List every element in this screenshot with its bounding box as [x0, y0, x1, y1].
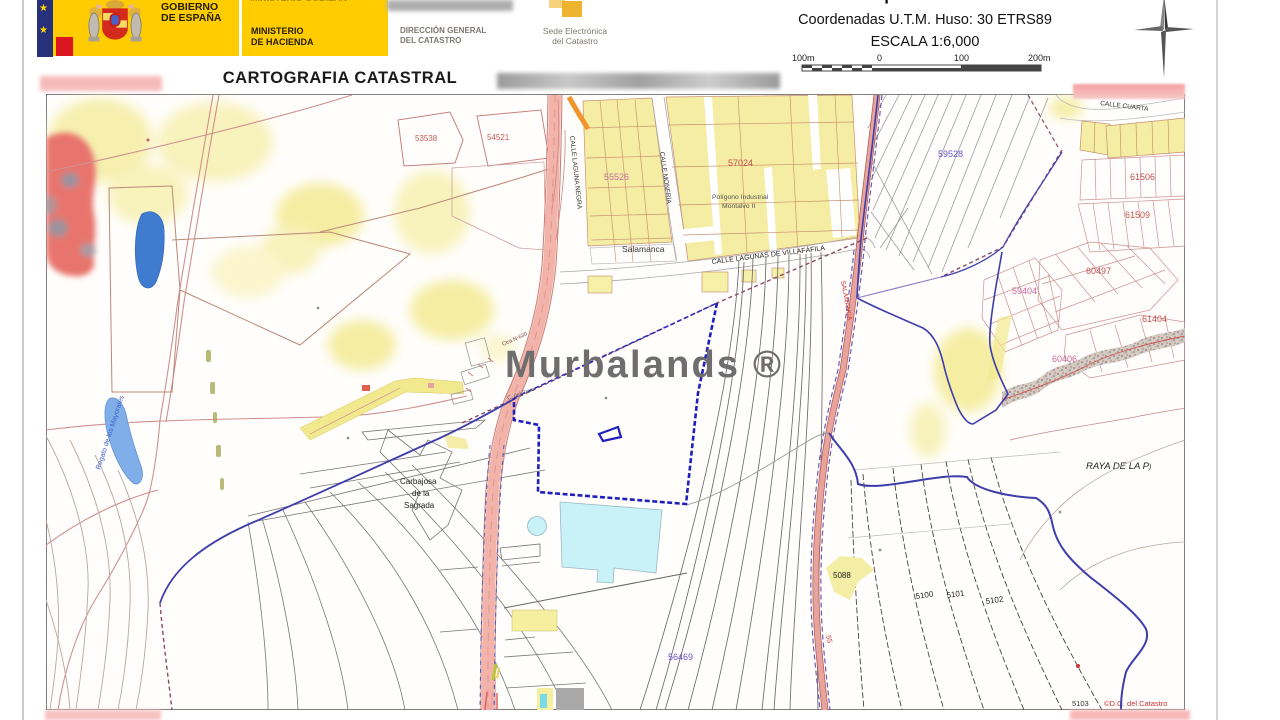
svg-text:57024: 57024	[728, 158, 753, 168]
svg-text:Salamanca: Salamanca	[622, 244, 665, 254]
svg-text:RAYA DE LA P): RAYA DE LA P)	[1086, 461, 1151, 472]
svg-text:100m: 100m	[792, 53, 815, 63]
svg-text:59528: 59528	[938, 149, 963, 159]
svg-text:100: 100	[954, 53, 969, 63]
svg-text:de la: de la	[412, 489, 430, 498]
svg-text:61506: 61506	[1130, 172, 1155, 182]
svg-text:56469: 56469	[668, 652, 693, 662]
svg-text:5103: 5103	[1072, 699, 1089, 708]
svg-text:54521: 54521	[487, 133, 510, 142]
svg-text:60497: 60497	[1086, 266, 1111, 276]
svg-text:Sagrada: Sagrada	[404, 501, 435, 510]
svg-text:0: 0	[877, 53, 882, 63]
svg-text:200m: 200m	[1028, 53, 1051, 63]
svg-text:55526: 55526	[604, 172, 629, 182]
svg-text:Murbalands ®: Murbalands ®	[505, 344, 783, 386]
svg-text:53538: 53538	[415, 134, 438, 143]
svg-text:5088: 5088	[833, 571, 851, 580]
svg-text:©D.G. del Catastro: ©D.G. del Catastro	[1104, 699, 1167, 708]
svg-text:61404: 61404	[1142, 314, 1167, 324]
svg-text:Carbajosa: Carbajosa	[400, 477, 437, 486]
svg-text:Polígono Industrial: Polígono Industrial	[712, 194, 769, 201]
svg-text:59404: 59404	[1012, 286, 1037, 296]
svg-text:Montalvo II: Montalvo II	[722, 203, 755, 210]
svg-text:61509: 61509	[1125, 210, 1150, 220]
